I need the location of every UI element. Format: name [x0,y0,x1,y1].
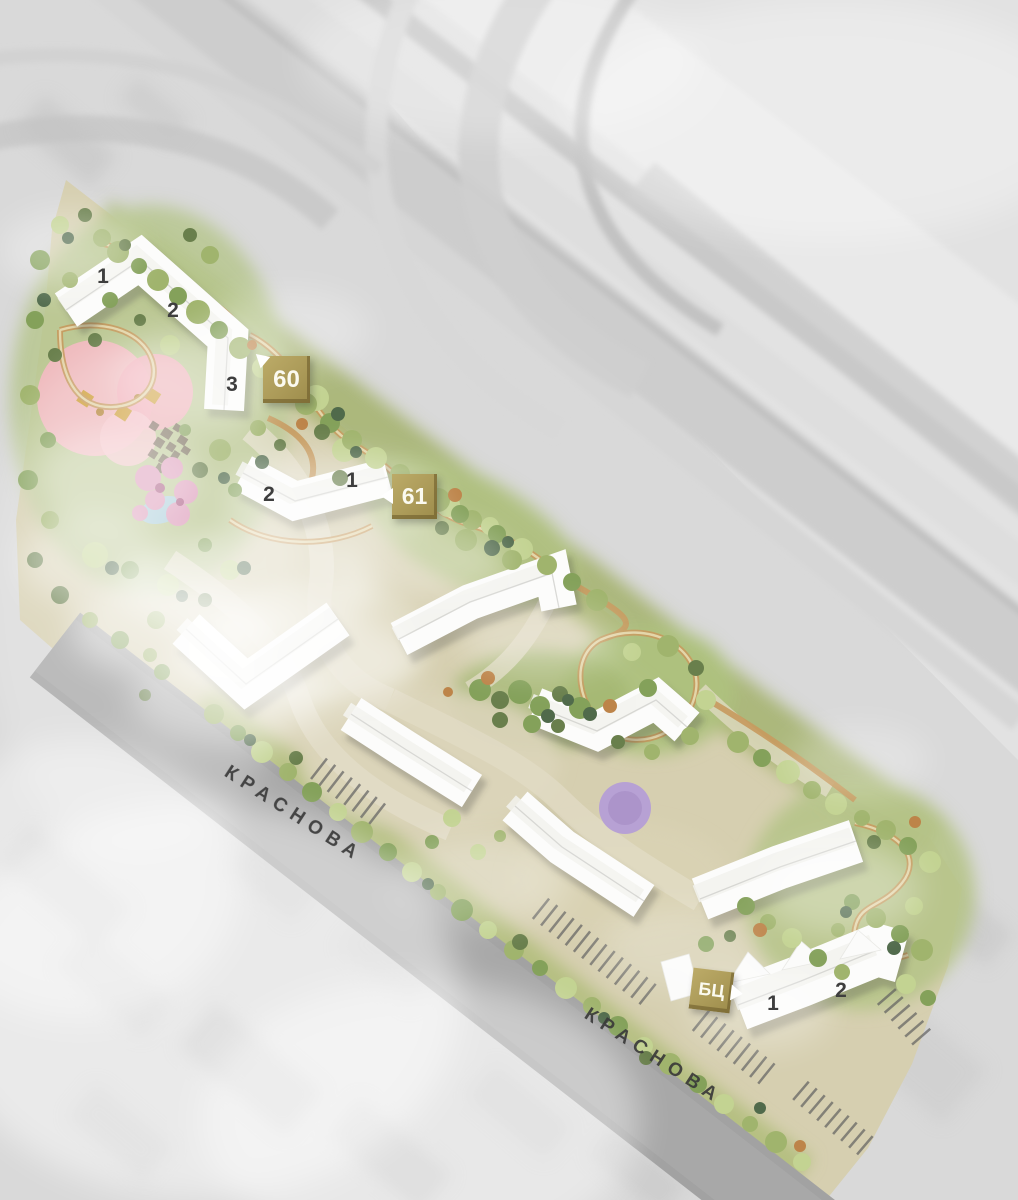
badge-building-60[interactable]: 60 [263,356,310,403]
building-60-section-2: 2 [167,299,179,323]
site-plan-rendering [0,0,1018,1200]
bc-block-section-2: 2 [835,979,847,1003]
badge-business-center-label: БЦ [697,978,725,1002]
purple-tree [599,782,651,834]
badge-business-center[interactable]: БЦ [689,968,735,1014]
building-61-section-1: 1 [346,469,358,493]
badge-building-61-label: 61 [402,483,428,510]
building-60-section-3: 3 [226,373,238,397]
badge-building-60-label: 60 [273,366,300,394]
building-61-section-2: 2 [263,483,275,507]
badge-pointer-icon [381,488,393,504]
building-60-section-1: 1 [97,265,109,289]
badge-pointer-icon [730,984,744,1001]
bc-block-section-1: 1 [767,992,779,1016]
badge-building-61[interactable]: 61 [392,474,437,519]
masterplan-canvas: 1 2 3 2 1 1 2 КРАСНОВА КРАСНОВА 60 61 БЦ [0,0,1018,1200]
